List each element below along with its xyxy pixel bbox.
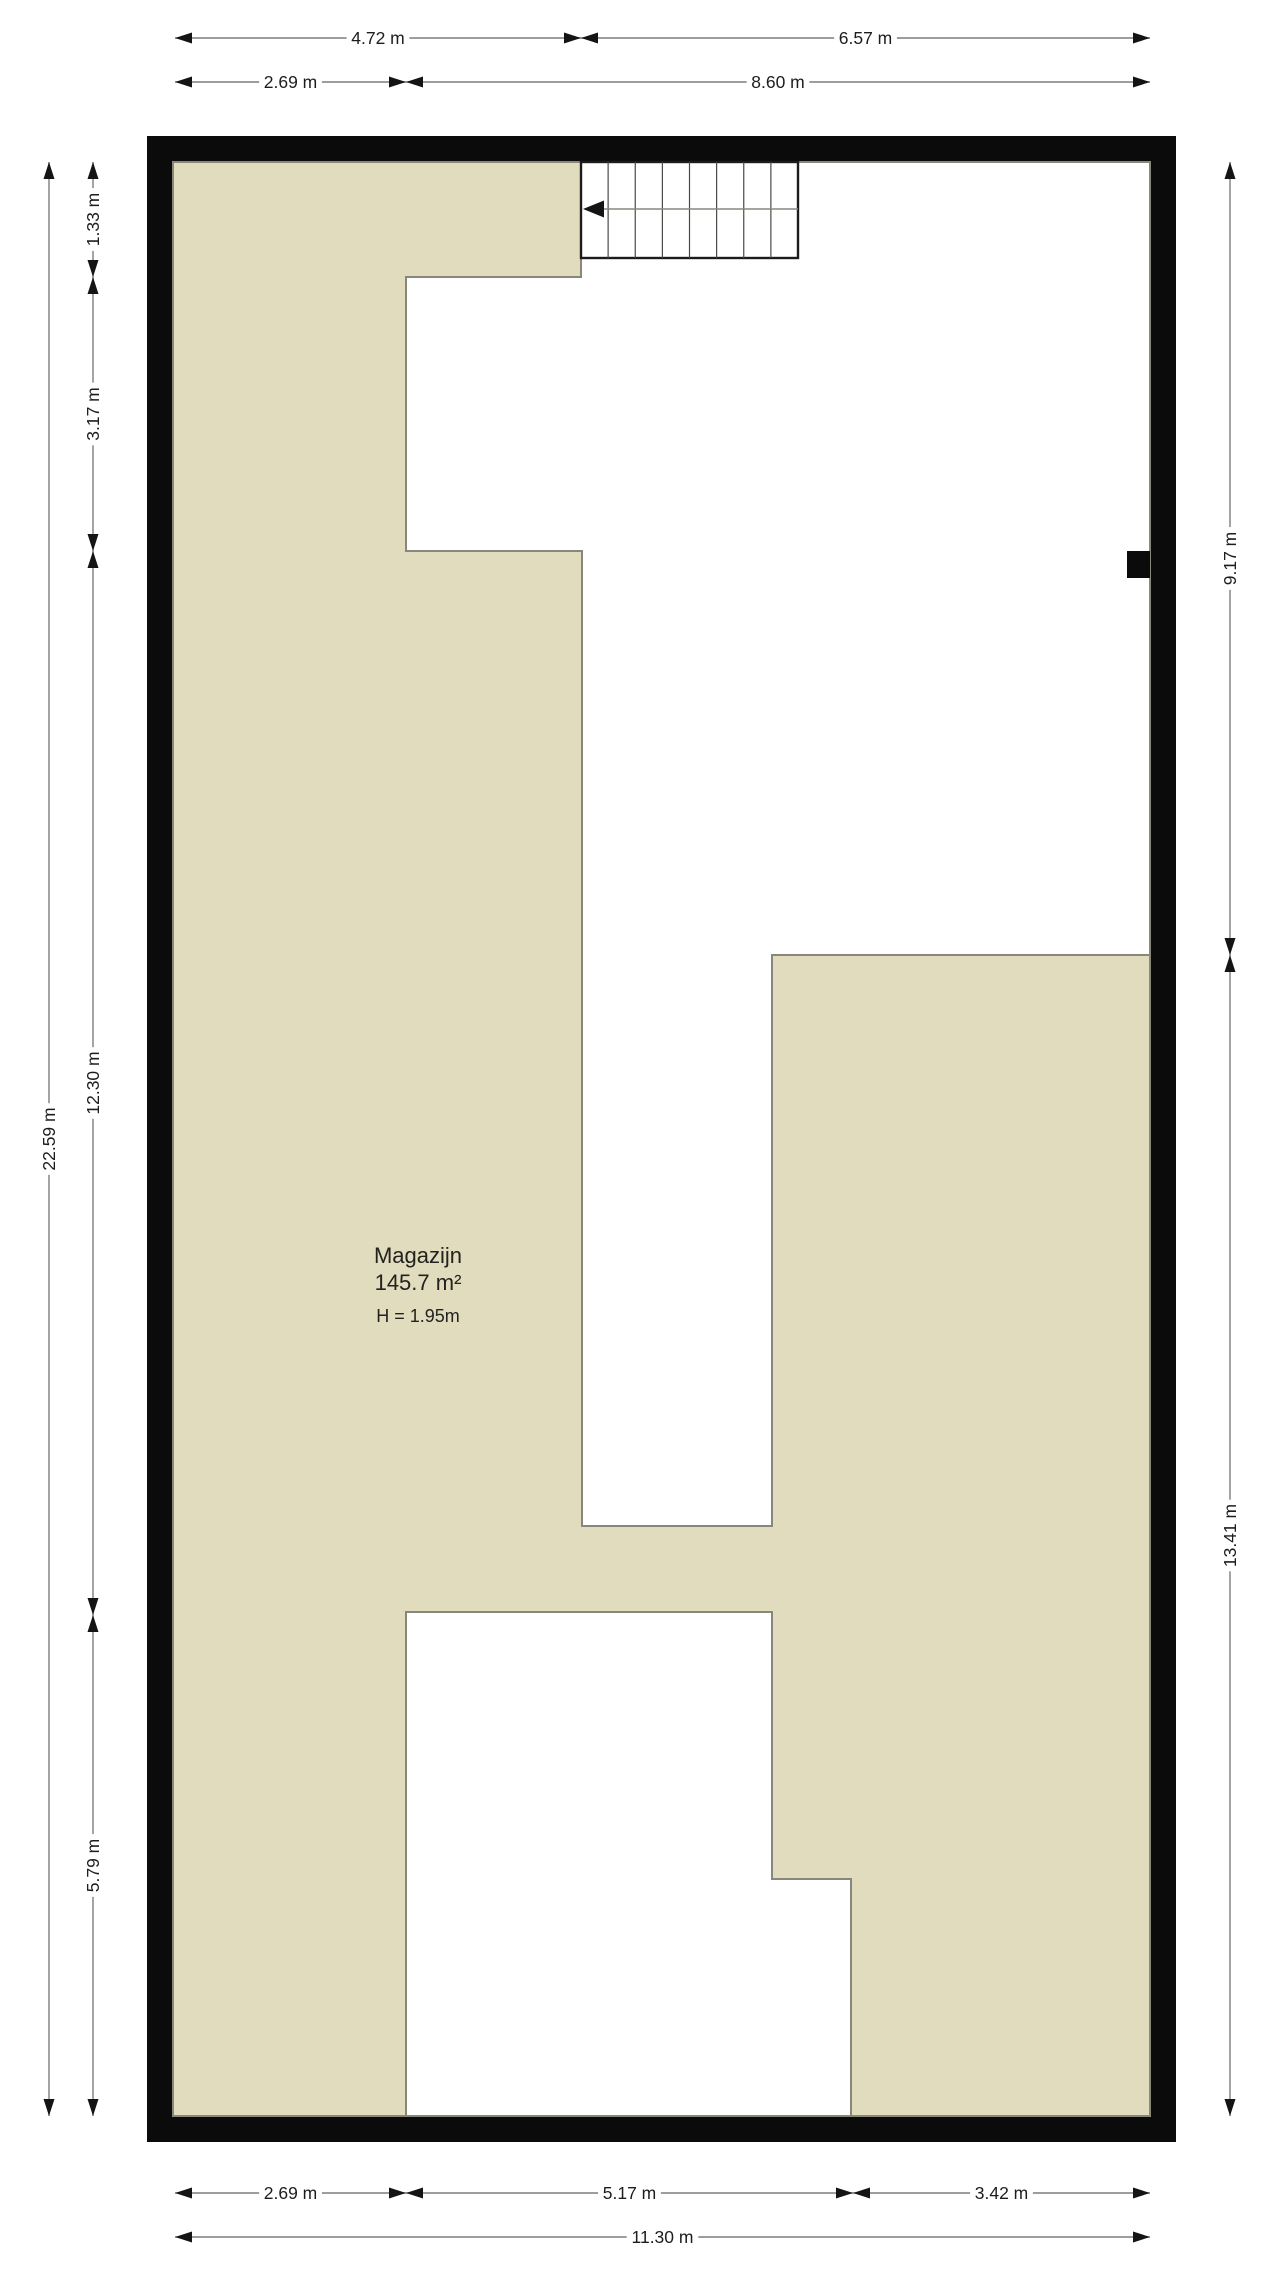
- dimension-arrow-icon: [1225, 938, 1236, 955]
- dimension-arrow-icon: [88, 277, 99, 294]
- dimension-label-group: 2.69 m: [259, 2182, 322, 2204]
- dimension-arrow-icon: [88, 534, 99, 551]
- dimension-arrow-icon: [175, 2188, 192, 2199]
- dimension-arrow-icon: [44, 2099, 55, 2116]
- dimension-label: 6.57 m: [839, 28, 893, 48]
- dimension-label: 2.69 m: [264, 72, 318, 92]
- dimension-arrow-icon: [175, 77, 192, 88]
- dimension-label-group: 22.59 m: [38, 1103, 60, 1175]
- room-area-label: 145.7 m²: [375, 1270, 462, 1296]
- dimension-label: 9.17 m: [1220, 532, 1240, 586]
- dimension-arrow-icon: [564, 33, 581, 44]
- wall-stub: [1127, 551, 1150, 578]
- dimension-arrow-icon: [406, 2188, 423, 2199]
- dimension-arrow-icon: [389, 2188, 406, 2199]
- dimension-arrow-icon: [88, 1615, 99, 1632]
- dimension-label: 2.69 m: [264, 2183, 318, 2203]
- floorplan-canvas: 4.72 m6.57 m2.69 m8.60 m2.69 m5.17 m3.42…: [0, 0, 1280, 2276]
- dimension-label: 13.41 m: [1220, 1504, 1240, 1567]
- dimension-label-group: 11.30 m: [627, 2226, 699, 2248]
- dimension-arrow-icon: [175, 33, 192, 44]
- dimension-arrow-icon: [1225, 2099, 1236, 2116]
- dimension-label: 11.30 m: [632, 2227, 694, 2247]
- dimension-arrow-icon: [1133, 33, 1150, 44]
- dimension-arrow-icon: [1225, 162, 1236, 179]
- dimension-label-group: 8.60 m: [747, 71, 810, 93]
- dimension-arrow-icon: [1133, 2232, 1150, 2243]
- dimension-arrow-icon: [88, 260, 99, 277]
- dimension-label-group: 3.42 m: [970, 2182, 1033, 2204]
- room-height-label: H = 1.95m: [376, 1306, 460, 1327]
- dimension-label-group: 2.69 m: [259, 71, 322, 93]
- dimension-arrow-icon: [1225, 955, 1236, 972]
- dimension-label: 22.59 m: [39, 1107, 59, 1170]
- dimension-label: 3.42 m: [975, 2183, 1029, 2203]
- dimension-arrow-icon: [389, 77, 406, 88]
- dimension-arrow-icon: [88, 162, 99, 179]
- dimension-arrow-icon: [88, 1598, 99, 1615]
- dimension-arrow-icon: [44, 162, 55, 179]
- dimension-label: 12.30 m: [83, 1051, 103, 1114]
- dimension-label-group: 9.17 m: [1219, 527, 1241, 590]
- dimension-arrow-icon: [1133, 2188, 1150, 2199]
- room-name-label: Magazijn: [374, 1243, 462, 1269]
- dimension-label: 5.17 m: [603, 2183, 657, 2203]
- dimension-arrow-icon: [88, 2099, 99, 2116]
- dimension-arrow-icon: [581, 33, 598, 44]
- dimension-label: 3.17 m: [83, 387, 103, 441]
- dimension-label-group: 4.72 m: [347, 27, 410, 49]
- dimension-label-group: 5.79 m: [82, 1834, 104, 1897]
- dimension-label: 4.72 m: [351, 28, 405, 48]
- floorplan-drawing: 4.72 m6.57 m2.69 m8.60 m2.69 m5.17 m3.42…: [0, 0, 1280, 2276]
- dimension-label-group: 12.30 m: [82, 1047, 104, 1119]
- dimension-label: 8.60 m: [751, 72, 805, 92]
- dimension-arrow-icon: [88, 551, 99, 568]
- dimension-arrow-icon: [1133, 77, 1150, 88]
- dimension-label-group: 13.41 m: [1219, 1500, 1241, 1572]
- dimension-label-group: 6.57 m: [834, 27, 897, 49]
- dimension-arrow-icon: [836, 2188, 853, 2199]
- dimension-label-group: 3.17 m: [82, 383, 104, 446]
- dimension-arrow-icon: [175, 2232, 192, 2243]
- dimension-label-group: 1.33 m: [82, 188, 104, 251]
- dimension-arrow-icon: [406, 77, 423, 88]
- dimension-label-group: 5.17 m: [598, 2182, 661, 2204]
- dimension-label: 5.79 m: [83, 1839, 103, 1893]
- dimension-label: 1.33 m: [83, 193, 103, 247]
- dimension-arrow-icon: [853, 2188, 870, 2199]
